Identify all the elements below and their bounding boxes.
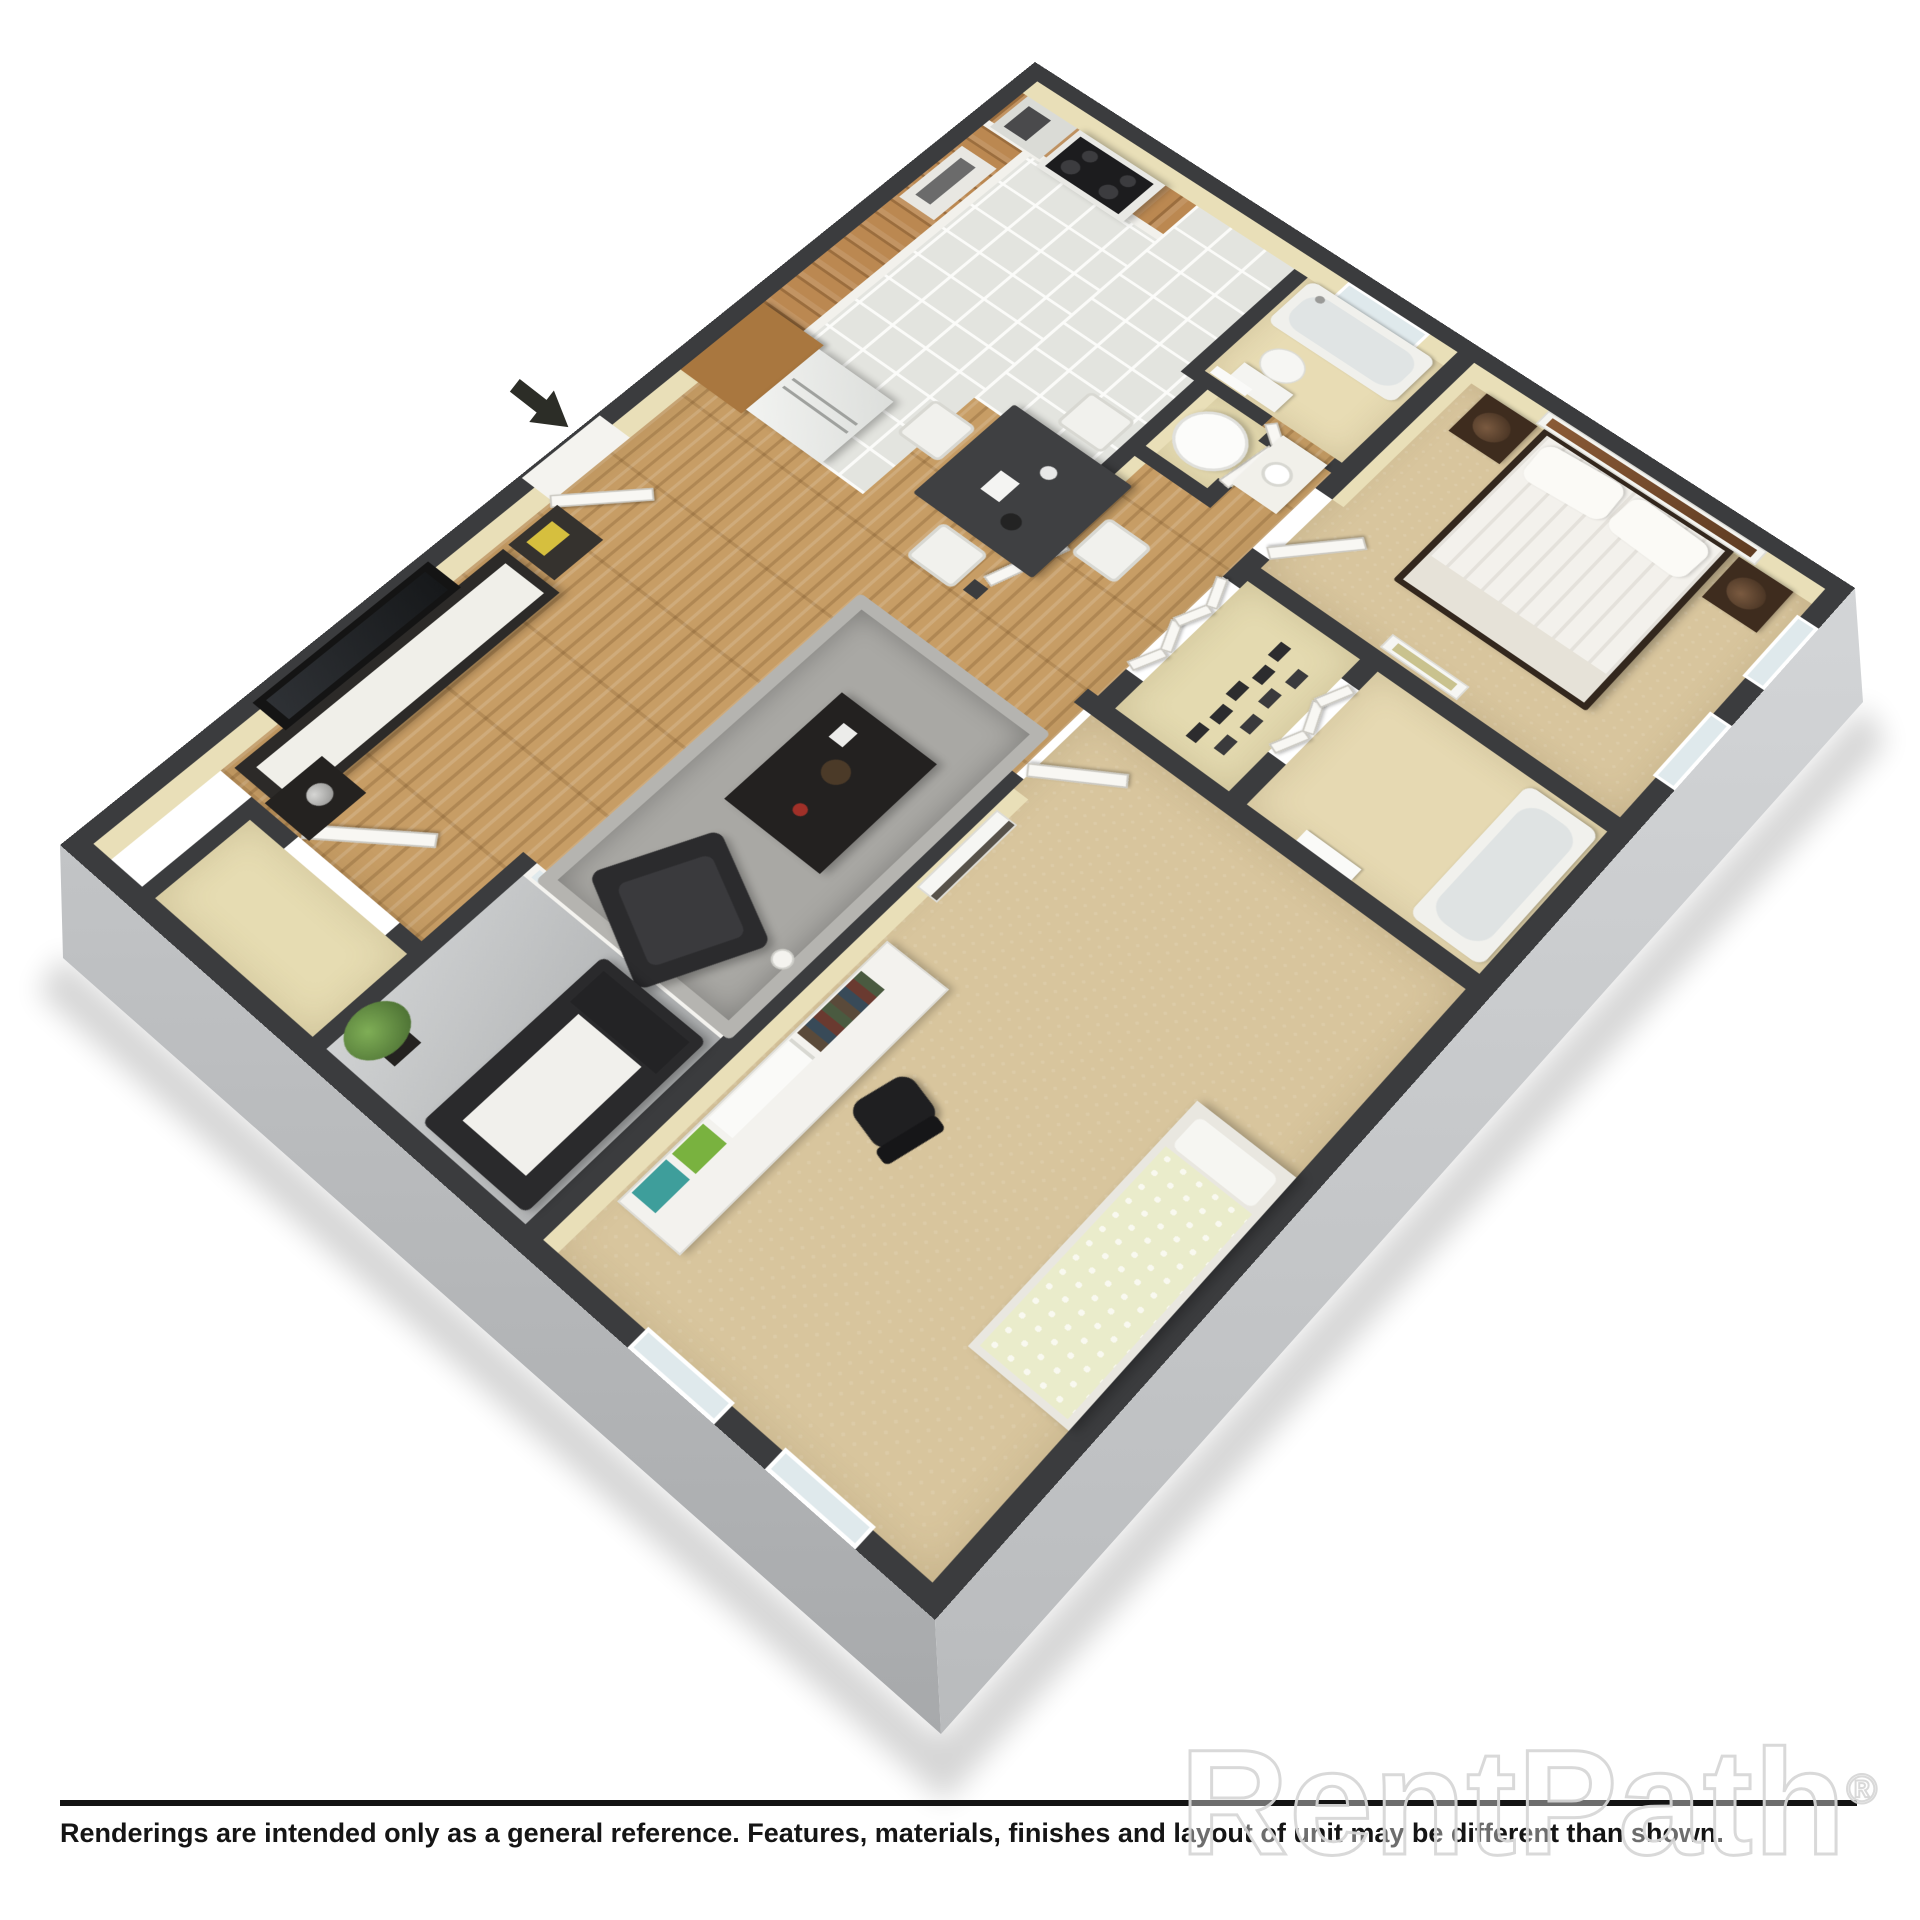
registered-trademark-icon: ® [1846, 1765, 1878, 1812]
entry-arrow-icon [502, 370, 580, 443]
page: { "image_type": "3d-isometric-floorplan-… [0, 0, 1920, 1920]
watermark: RentPath® [1180, 1716, 1878, 1889]
watermark-text: RentPath [1180, 1718, 1846, 1886]
